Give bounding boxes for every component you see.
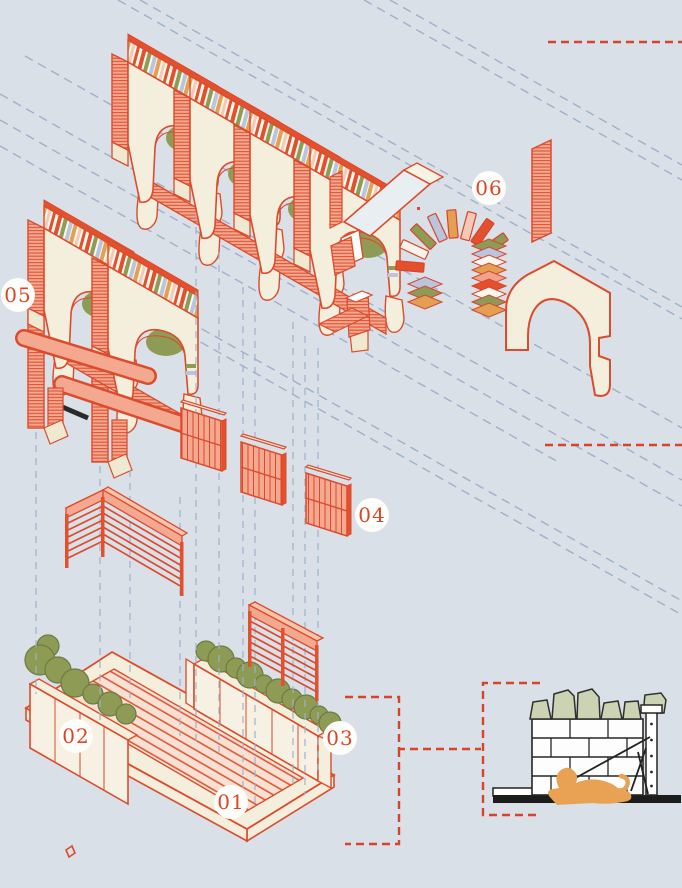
wall-section-detail-inset — [493, 689, 681, 805]
callout-04-text: 04 — [358, 503, 385, 527]
callout-01-text: 01 — [217, 790, 244, 814]
callout-06: 06 — [472, 171, 506, 205]
callout-06-text: 06 — [475, 176, 502, 200]
hatched-panel — [330, 171, 342, 228]
detail-bracket-left — [345, 697, 481, 749]
brick-block — [241, 434, 286, 505]
brick-blocks-04 — [181, 400, 351, 536]
brick-block — [306, 465, 351, 536]
callout-02-text: 02 — [62, 724, 89, 748]
book-stack-small — [408, 277, 442, 309]
flat-arch-profile — [506, 261, 610, 396]
book-stack-tall — [472, 239, 506, 317]
tiny-square-mark — [66, 846, 75, 857]
callout-03: 03 — [323, 721, 357, 755]
exploded-axonometric-diagram: 01 02 03 04 05 06 — [0, 0, 682, 888]
callout-03-text: 03 — [326, 726, 353, 750]
brick-block — [181, 400, 226, 471]
tiny-dot-mark — [417, 207, 420, 210]
callout-02: 02 — [59, 719, 93, 753]
callout-01: 01 — [214, 785, 248, 819]
callout-05-text: 05 — [4, 283, 31, 307]
callout-04: 04 — [355, 498, 389, 532]
twin-arch-pavilion-05 — [24, 200, 202, 478]
corner-louver-railing — [65, 487, 187, 596]
callout-05: 05 — [1, 278, 35, 312]
hatched-screen-panel — [532, 140, 551, 242]
